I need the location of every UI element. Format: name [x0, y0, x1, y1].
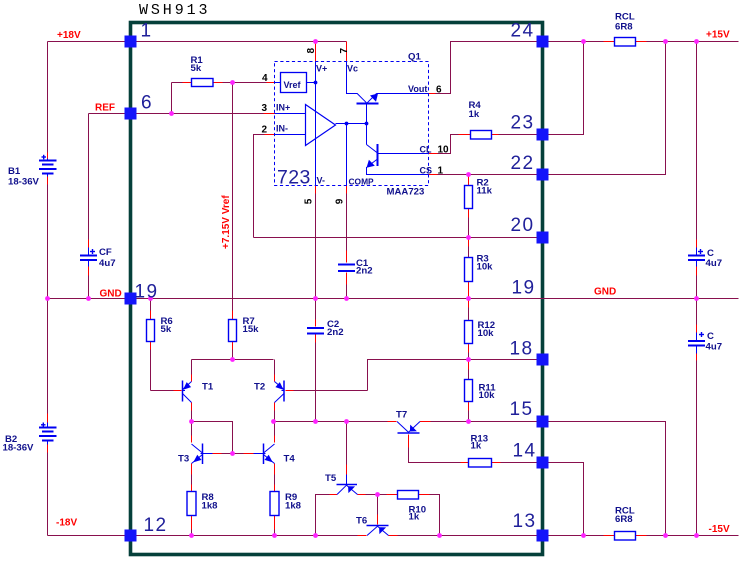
svg-text:CF: CF — [99, 247, 112, 258]
svg-text:Vout: Vout — [408, 84, 427, 94]
svg-text:10: 10 — [438, 145, 450, 156]
svg-text:19: 19 — [135, 282, 159, 303]
svg-text:4u7: 4u7 — [706, 258, 723, 269]
svg-text:723: 723 — [277, 167, 311, 189]
svg-text:-15V: -15V — [709, 524, 730, 535]
svg-text:6: 6 — [141, 93, 153, 114]
svg-text:2n2: 2n2 — [356, 266, 373, 277]
svg-text:6: 6 — [436, 85, 442, 96]
svg-text:1k: 1k — [469, 109, 480, 120]
svg-text:18-36V: 18-36V — [8, 177, 40, 188]
svg-text:1k: 1k — [471, 441, 482, 452]
svg-text:1: 1 — [438, 166, 444, 177]
svg-text:GND: GND — [594, 287, 616, 298]
svg-text:MAA723: MAA723 — [387, 187, 425, 198]
svg-text:11k: 11k — [477, 186, 493, 197]
svg-text:2: 2 — [262, 125, 268, 136]
svg-text:CS: CS — [420, 166, 433, 176]
svg-text:5: 5 — [304, 198, 315, 204]
svg-text:9: 9 — [335, 198, 346, 204]
svg-text:+15V: +15V — [706, 30, 730, 41]
svg-text:10k: 10k — [478, 328, 495, 339]
svg-text:4u7: 4u7 — [706, 342, 723, 353]
svg-text:15: 15 — [510, 399, 534, 420]
svg-text:14: 14 — [513, 441, 537, 462]
svg-text:T6: T6 — [356, 516, 367, 527]
svg-text:IN-: IN- — [276, 124, 288, 134]
svg-text:CL: CL — [420, 145, 432, 155]
svg-text:T4: T4 — [284, 454, 296, 465]
svg-text:15k: 15k — [243, 324, 260, 335]
svg-text:B1: B1 — [8, 166, 21, 177]
svg-text:-18V: -18V — [56, 518, 77, 529]
svg-text:+7.15V Vref: +7.15V Vref — [221, 195, 232, 249]
svg-text:V+: V+ — [316, 64, 327, 74]
svg-text:6R8: 6R8 — [615, 514, 633, 525]
svg-text:REF: REF — [95, 103, 115, 114]
svg-text:Q1: Q1 — [408, 52, 421, 63]
svg-text:T2: T2 — [254, 382, 265, 393]
svg-text:7: 7 — [339, 48, 350, 54]
svg-text:19: 19 — [512, 278, 536, 299]
svg-text:T3: T3 — [178, 454, 189, 465]
svg-text:+18V: +18V — [57, 30, 81, 41]
svg-text:2n2: 2n2 — [327, 327, 344, 338]
svg-text:T5: T5 — [325, 473, 337, 484]
svg-text:8: 8 — [306, 48, 317, 54]
svg-text:23: 23 — [511, 113, 535, 134]
svg-text:18-36V: 18-36V — [3, 443, 35, 454]
svg-text:20: 20 — [511, 215, 535, 236]
svg-text:GND: GND — [100, 289, 122, 300]
svg-text:6R8: 6R8 — [615, 22, 633, 33]
svg-text:T1: T1 — [202, 382, 214, 393]
svg-text:4u7: 4u7 — [99, 258, 116, 269]
svg-text:1k8: 1k8 — [202, 501, 219, 512]
svg-text:T7: T7 — [396, 410, 407, 421]
svg-text:1k8: 1k8 — [285, 501, 302, 512]
svg-text:V-: V- — [317, 176, 326, 186]
svg-text:24: 24 — [511, 21, 535, 42]
svg-text:Vc: Vc — [347, 64, 358, 74]
svg-text:1: 1 — [141, 21, 153, 42]
svg-text:1k: 1k — [409, 512, 420, 523]
svg-text:10k: 10k — [479, 390, 496, 401]
svg-text:3: 3 — [262, 103, 268, 114]
svg-text:5k: 5k — [191, 63, 202, 74]
svg-text:12: 12 — [144, 515, 168, 536]
svg-text:18: 18 — [510, 339, 534, 360]
svg-text:Vref: Vref — [284, 80, 302, 90]
svg-text:WSH913: WSH913 — [139, 2, 210, 19]
svg-text:13: 13 — [513, 511, 537, 532]
svg-text:IN+: IN+ — [276, 103, 290, 113]
svg-text:5k: 5k — [161, 324, 172, 335]
svg-text:C: C — [707, 331, 714, 342]
svg-text:10k: 10k — [477, 262, 494, 273]
svg-text:22: 22 — [511, 153, 535, 174]
svg-text:4: 4 — [262, 73, 268, 84]
svg-text:COMP: COMP — [349, 177, 375, 187]
